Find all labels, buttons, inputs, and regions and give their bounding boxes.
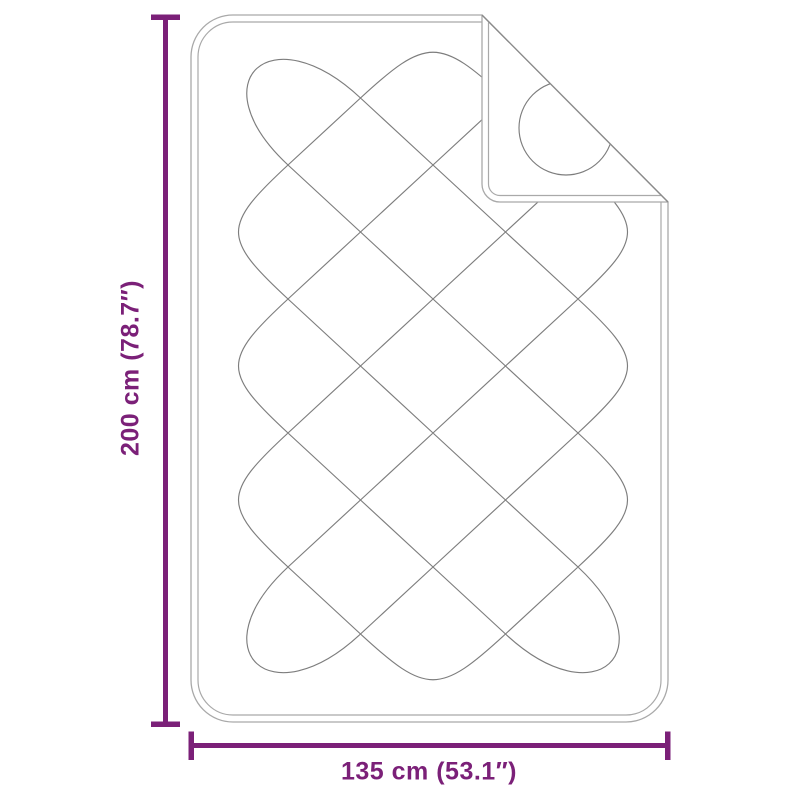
horizontal-dimension-line [189, 732, 671, 761]
vertical-dimension-line [151, 15, 180, 728]
vertical-dimension-label: 200 cm (78.7″) [117, 280, 146, 456]
horizontal-dimension-label: 135 cm (53.1″) [341, 758, 517, 787]
